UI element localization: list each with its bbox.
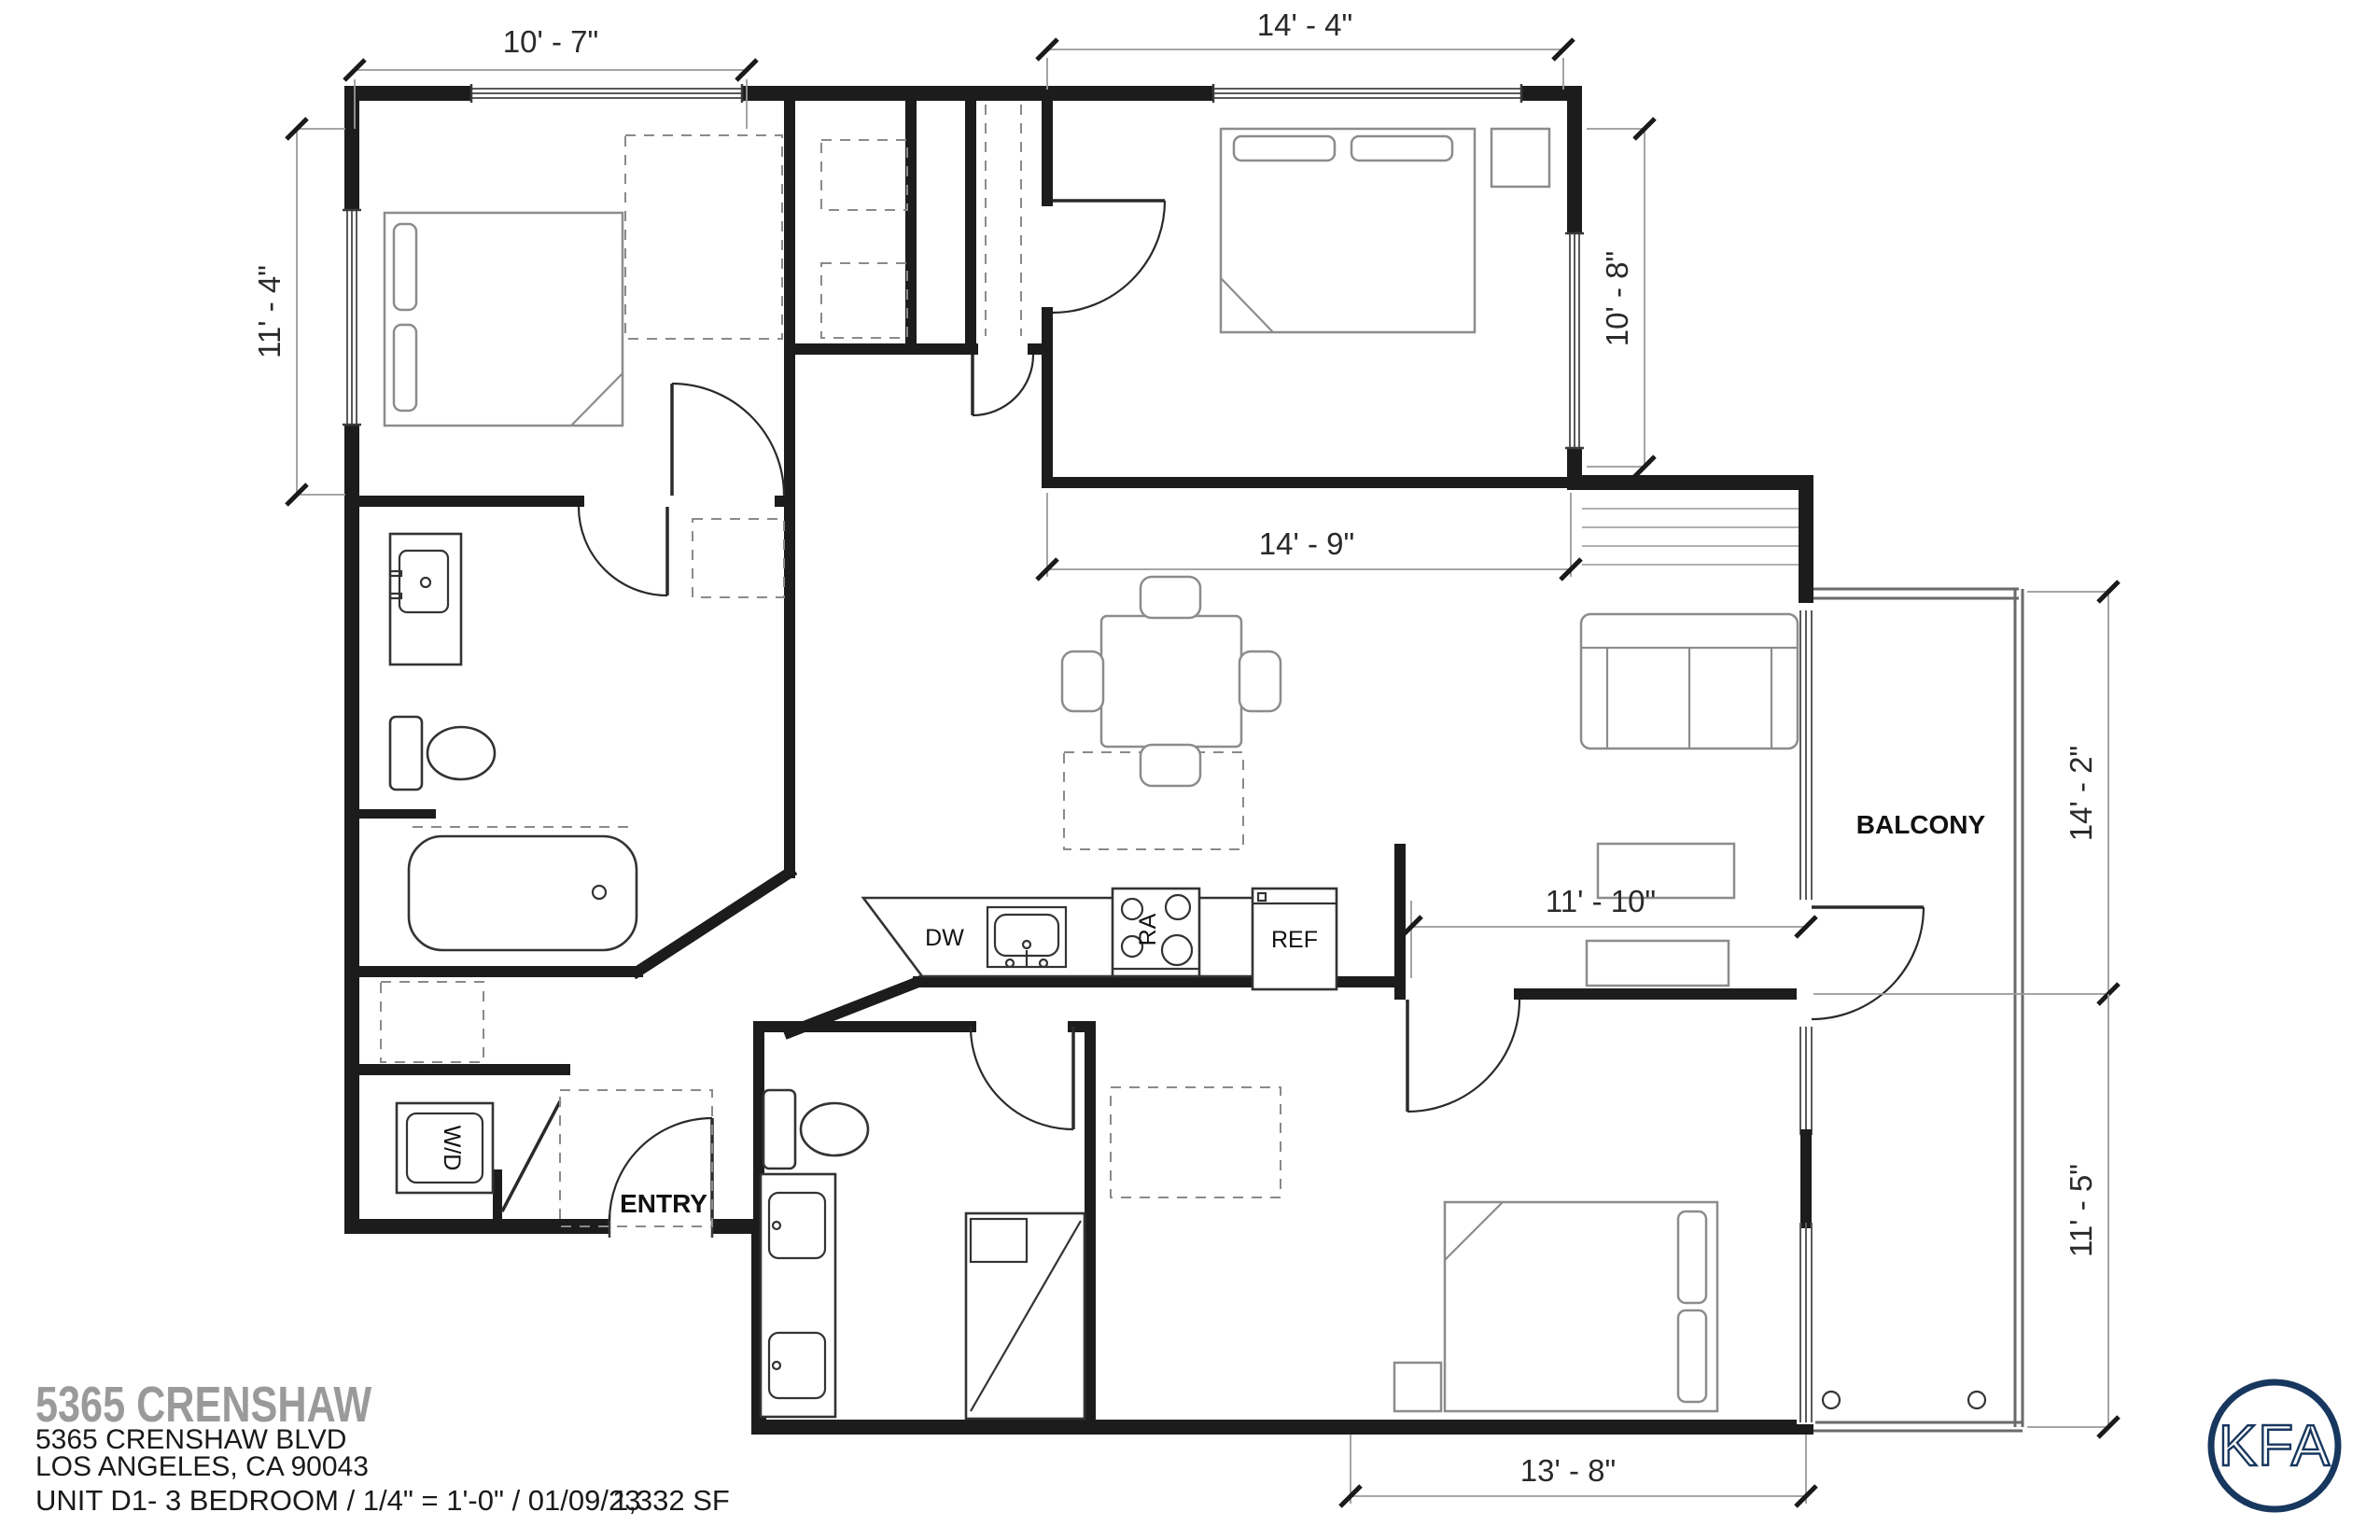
- kfa-logo: KFA: [2211, 1382, 2338, 1509]
- siding-hatch: [1582, 509, 1799, 565]
- balcony-label: BALCONY: [1856, 810, 1986, 839]
- dim-bedroom2-right: 10' - 8": [1600, 251, 1634, 346]
- dining-table: [1062, 577, 1281, 786]
- balcony-enclosure: [1806, 589, 2023, 1431]
- toilet-bathroom2-icon: [763, 1090, 868, 1169]
- bedroom1-bed: [385, 213, 623, 426]
- plan-labels: BALCONY ENTRY DW REF RA W/D: [439, 810, 1986, 1218]
- dim-left-side: 11' - 4": [252, 265, 287, 358]
- media-console: [1587, 941, 1729, 986]
- dim-balcony-upper: 14' - 2": [2064, 746, 2098, 841]
- unit-area: 1,332 SF: [612, 1484, 730, 1518]
- floor-plan-sheet: 10' - 7" 14' - 4" 11' - 4" 10' - 8" 14' …: [0, 0, 2380, 1540]
- sofa: [1581, 614, 1798, 749]
- dim-top-right: 14' - 4": [1257, 7, 1352, 42]
- toilet-bathroom1-icon: [390, 717, 495, 790]
- project-address: 5365 CRENSHAW BLVD LOS ANGELES, CA 90043: [35, 1426, 369, 1480]
- washer-dryer-label: W/D: [439, 1126, 465, 1171]
- bedroom3-bed: [1394, 1202, 1717, 1411]
- bathroom2-shower: [966, 1213, 1085, 1419]
- bathroom1-vanity: [390, 534, 461, 665]
- unit-info-line: UNIT D1- 3 BEDROOM / 1/4" = 1'-0" / 01/0…: [35, 1484, 640, 1518]
- bedroom2-bed: [1221, 129, 1549, 332]
- floor-plan-drawing: 10' - 7" 14' - 4" 11' - 4" 10' - 8" 14' …: [0, 0, 2380, 1540]
- dim-balcony-lower: 11' - 5": [2064, 1164, 2098, 1257]
- range-label: RA: [1135, 913, 1161, 945]
- dim-bottom: 13' - 8": [1520, 1453, 1616, 1488]
- refrigerator-label: REF: [1271, 927, 1318, 953]
- bathtub-icon: [409, 827, 637, 950]
- bathroom2-double-vanity: [761, 1174, 835, 1417]
- dim-living-width: 14' - 9": [1259, 526, 1354, 561]
- entry-label: ENTRY: [620, 1189, 707, 1218]
- dishwasher-label: DW: [925, 925, 964, 951]
- dim-kitchen-width: 11' - 10": [1546, 884, 1656, 918]
- dim-top-left: 10' - 7": [503, 24, 598, 59]
- kfa-logo-text: KFA: [2219, 1414, 2331, 1478]
